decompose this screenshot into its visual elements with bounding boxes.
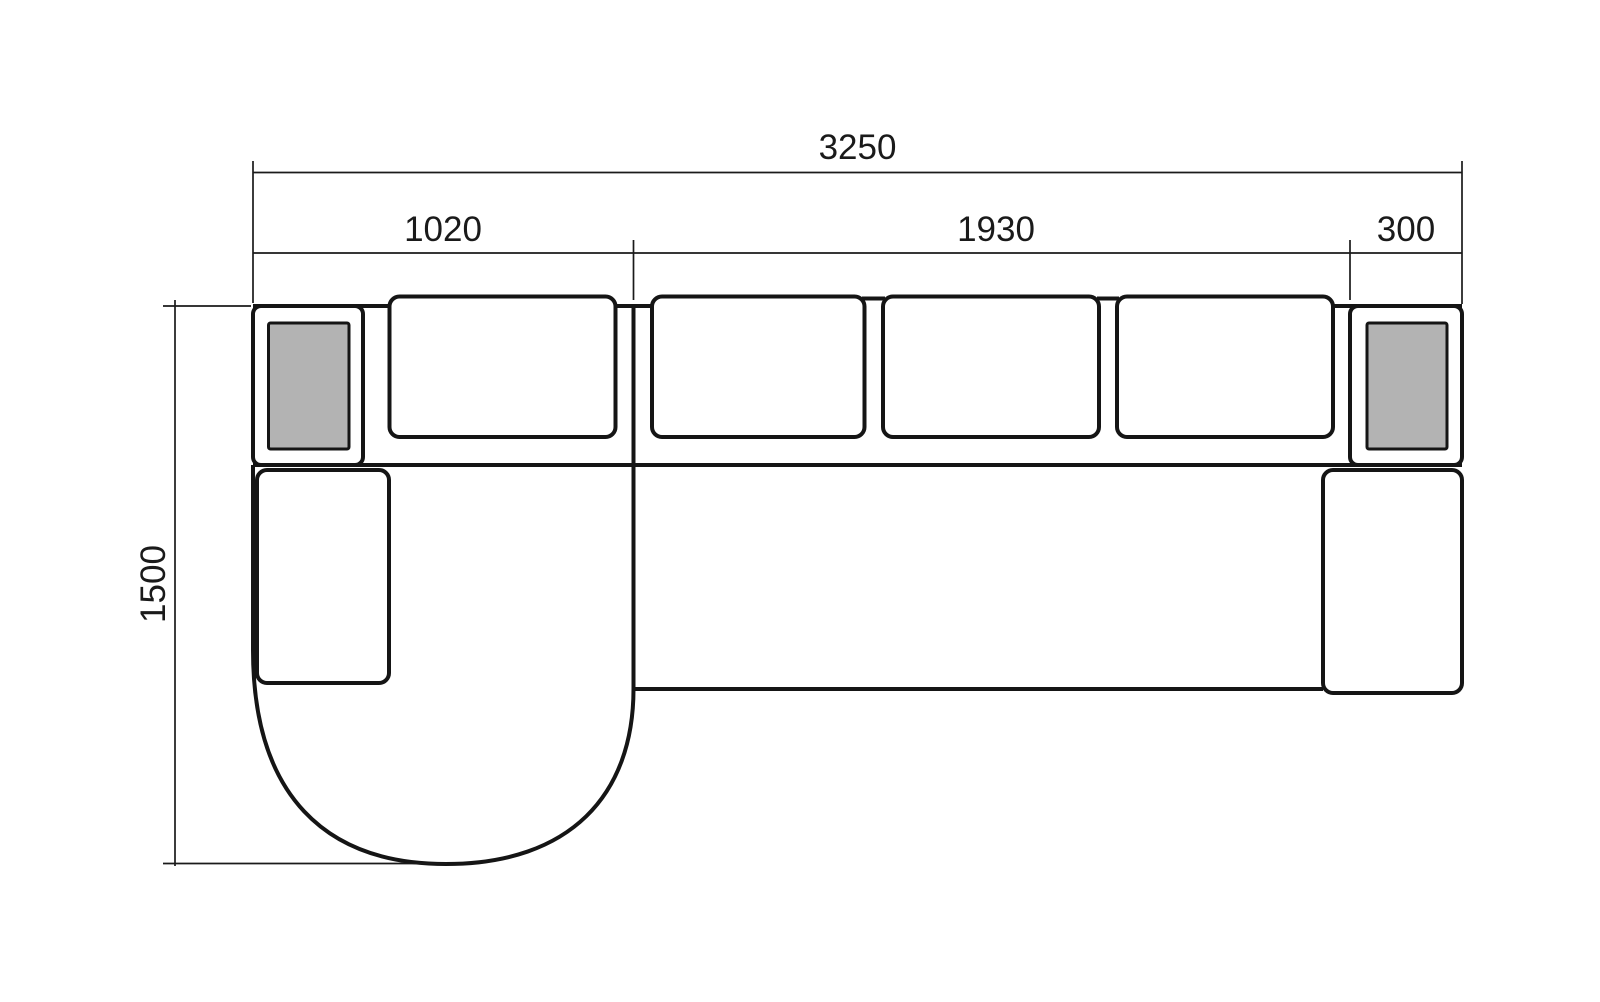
sofa-body [253, 297, 1462, 865]
label-seat-module-width: 1930 [957, 210, 1035, 249]
label-arm-module-width: 300 [1377, 210, 1435, 249]
back-cushion-1 [390, 297, 616, 438]
label-overall-depth: 1500 [134, 545, 173, 623]
back-cushion-4 [1117, 297, 1333, 438]
sofa-plan-drawing: 3250 1020 1930 300 1500 [0, 0, 1600, 1002]
right-armrest-pad [1367, 323, 1447, 449]
label-overall-width: 3250 [819, 128, 897, 167]
back-cushion-3 [883, 297, 1099, 438]
back-cushion-2 [652, 297, 865, 438]
label-chaise-module-width: 1020 [404, 210, 482, 249]
chaise-seat-cushion [257, 470, 389, 683]
right-return-seat [1323, 470, 1462, 693]
left-armrest-pad [269, 323, 350, 449]
